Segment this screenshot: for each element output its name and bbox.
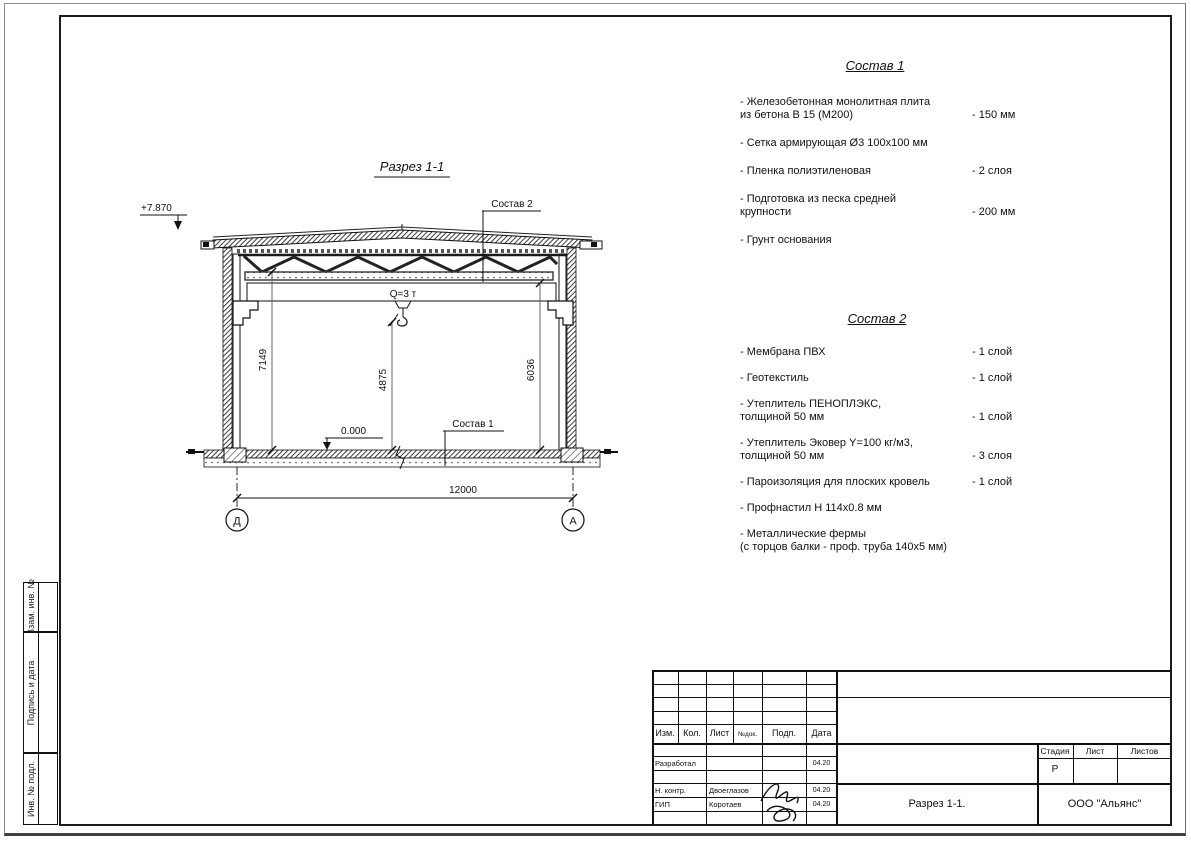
- list-item: - Утеплитель ПЕНОПЛЭКС, толщиной 50 мм -…: [740, 398, 1060, 424]
- list-item: - Пароизоляция для плоских кровель - 1 с…: [740, 476, 1060, 489]
- crane-capacity-label: Q=3 т: [390, 289, 417, 300]
- divider-line: [652, 811, 837, 812]
- header-ndok: №док.: [733, 731, 762, 738]
- callout-roof-label: Состав 2: [491, 199, 533, 210]
- elevation-zero-label: 0.000: [341, 426, 366, 437]
- item-value: - 1 слой: [972, 346, 1012, 359]
- stamp-podpis-data: Подпись и дата: [23, 632, 58, 753]
- list-item: - Пленка полиэтиленовая - 2 слоя: [740, 165, 1060, 178]
- sheet-label: Лист: [1073, 746, 1117, 756]
- roof-composition-band: [213, 230, 592, 248]
- divider-line: [652, 697, 1172, 698]
- row-name: Коротаев: [709, 800, 763, 809]
- right-column-base: [561, 448, 583, 462]
- divider-line: [652, 670, 654, 826]
- floor-slab-top: [204, 450, 600, 458]
- stamp-inv-podl: Инв. № подл.: [23, 753, 58, 825]
- row-date: 04.20: [806, 787, 837, 794]
- header-izm: Изм.: [652, 728, 678, 738]
- stamp-vzam-inv: Взам. инв. №: [23, 582, 58, 632]
- row-name: Двоеглазов: [709, 786, 763, 795]
- composition2-title: Состав 2: [742, 311, 1012, 326]
- row-role: Разработал: [655, 759, 707, 768]
- stamp-vzam-label: Взам. инв. №: [26, 579, 36, 635]
- axis-left-label: Д: [233, 516, 241, 528]
- list-item: - Сетка армирующая Ø3 100х100 мм: [740, 137, 1060, 150]
- stage-label: Стадия: [1037, 746, 1073, 756]
- row-role: Н. контр.: [655, 786, 707, 795]
- list-item: - Железобетонная монолитная плита из бет…: [740, 96, 1060, 122]
- drawing-sheet: Взам. инв. № Подпись и дата Инв. № подл.: [0, 0, 1191, 842]
- item-name: - Утеплитель ПЕНОПЛЭКС, толщиной 50 мм: [740, 398, 972, 424]
- divider-line: [652, 711, 837, 712]
- item-value: - 2 слоя: [972, 165, 1012, 178]
- item-name: - Профнастил Н 114х0.8 мм: [740, 502, 972, 515]
- right-wall: [567, 248, 576, 452]
- divider-line: [652, 770, 837, 771]
- stamp-label-cell: Взам. инв. №: [24, 583, 39, 631]
- divider-line: [652, 743, 1172, 745]
- company-name: ООО "Альянс": [1037, 783, 1172, 826]
- item-name: - Подготовка из песка средней крупности: [740, 193, 972, 219]
- right-column: [559, 254, 566, 452]
- list-item: - Профнастил Н 114х0.8 мм: [740, 502, 1060, 515]
- header-list: Лист: [706, 728, 733, 738]
- row-role: ГИП: [655, 800, 707, 809]
- elevation-zero-arrow: [323, 442, 331, 450]
- divider-line: [652, 724, 837, 725]
- section-title: Разрез 1-1: [380, 159, 444, 174]
- header-podp: Подп.: [762, 728, 806, 738]
- divider-line: [1037, 758, 1172, 759]
- roof-left-tab-block: [203, 242, 209, 247]
- dim-4875-label: 4875: [378, 368, 389, 391]
- list-item: - Геотекстиль - 1 слой: [740, 372, 1060, 385]
- left-column-base: [224, 448, 246, 462]
- list-item: - Мембрана ПВХ - 1 слой: [740, 346, 1060, 359]
- left-corbel: [233, 301, 258, 325]
- divider-line: [652, 670, 1172, 672]
- floor-right-wing-block: [604, 449, 611, 454]
- elevation-arrow-head: [174, 221, 182, 230]
- axis-right-label: А: [569, 516, 577, 528]
- list-item: - Утеплитель Эковер Y=100 кг/м3, толщино…: [740, 437, 1060, 463]
- truss-bottom-chord: [245, 272, 553, 280]
- item-name: - Сетка армирующая Ø3 100х100 мм: [740, 137, 972, 150]
- list-item: - Металлические фермы (с торцов балки - …: [740, 528, 1060, 554]
- stamp-inv-label: Инв. № подл.: [26, 761, 36, 817]
- left-wall: [223, 248, 232, 452]
- item-name: - Металлические фермы (с торцов балки - …: [740, 528, 972, 554]
- item-value: - 150 мм: [972, 109, 1015, 122]
- item-value: - 1 слой: [972, 476, 1012, 489]
- sheets-label: Листов: [1117, 746, 1172, 756]
- item-value: - 3 слоя: [972, 450, 1012, 463]
- item-value: - 1 слой: [972, 372, 1012, 385]
- dim-7149-label: 7149: [258, 348, 269, 371]
- composition1-list: - Железобетонная монолитная плита из бет…: [740, 96, 1060, 262]
- divider-line: [652, 684, 837, 685]
- stamp-podpis-label: Подпись и дата: [26, 660, 36, 725]
- list-item: - Подготовка из песка средней крупности …: [740, 193, 1060, 219]
- divider-line: [652, 797, 837, 798]
- section-drawing: Разрез 1-1 +7.870 Q=3 т: [120, 150, 640, 550]
- composition1-title: Состав 1: [740, 58, 1010, 73]
- item-name: - Пароизоляция для плоских кровель: [740, 476, 972, 489]
- divider-line: [652, 756, 837, 757]
- callout-floor-label: Состав 1: [452, 419, 494, 430]
- item-name: - Геотекстиль: [740, 372, 972, 385]
- stage-value: Р: [1037, 764, 1073, 775]
- truss-diagonals: [245, 257, 556, 272]
- stamp-label-cell: Инв. № подл.: [24, 754, 39, 824]
- roof-right-tab-block: [591, 242, 597, 247]
- stamp-label-cell: Подпись и дата: [24, 633, 39, 752]
- list-item: - Грунт основания: [740, 234, 1060, 247]
- row-date: 04.20: [806, 760, 837, 767]
- dim-6036-label: 6036: [526, 358, 537, 381]
- item-name: - Пленка полиэтиленовая: [740, 165, 972, 178]
- doc-title: Разрез 1-1.: [837, 783, 1037, 826]
- crane-trolley: [395, 301, 411, 308]
- item-name: - Мембрана ПВХ: [740, 346, 972, 359]
- signature: [757, 773, 809, 825]
- header-data: Дата: [806, 728, 837, 738]
- left-column: [233, 254, 240, 452]
- header-kol: Кол.: [678, 728, 706, 738]
- elevation-top-label: +7.870: [141, 203, 172, 214]
- floor-left-wing-block: [188, 449, 195, 454]
- item-value: - 200 мм: [972, 206, 1015, 219]
- composition2-list: - Мембрана ПВХ - 1 слой - Геотекстиль - …: [740, 346, 1060, 569]
- floor-slab-bed: [204, 458, 600, 467]
- divider-line: [652, 783, 837, 784]
- title-block: Изм. Кол. Лист №док. Подп. Дата Разработ…: [652, 670, 1172, 826]
- item-name: - Грунт основания: [740, 234, 972, 247]
- item-name: - Утеплитель Эковер Y=100 кг/м3, толщино…: [740, 437, 972, 463]
- row-date: 04.20: [806, 801, 837, 808]
- dim-12000-label: 12000: [449, 485, 477, 496]
- crane-hook-icon: [398, 317, 407, 326]
- item-value: - 1 слой: [972, 411, 1012, 424]
- item-name: - Железобетонная монолитная плита из бет…: [740, 96, 972, 122]
